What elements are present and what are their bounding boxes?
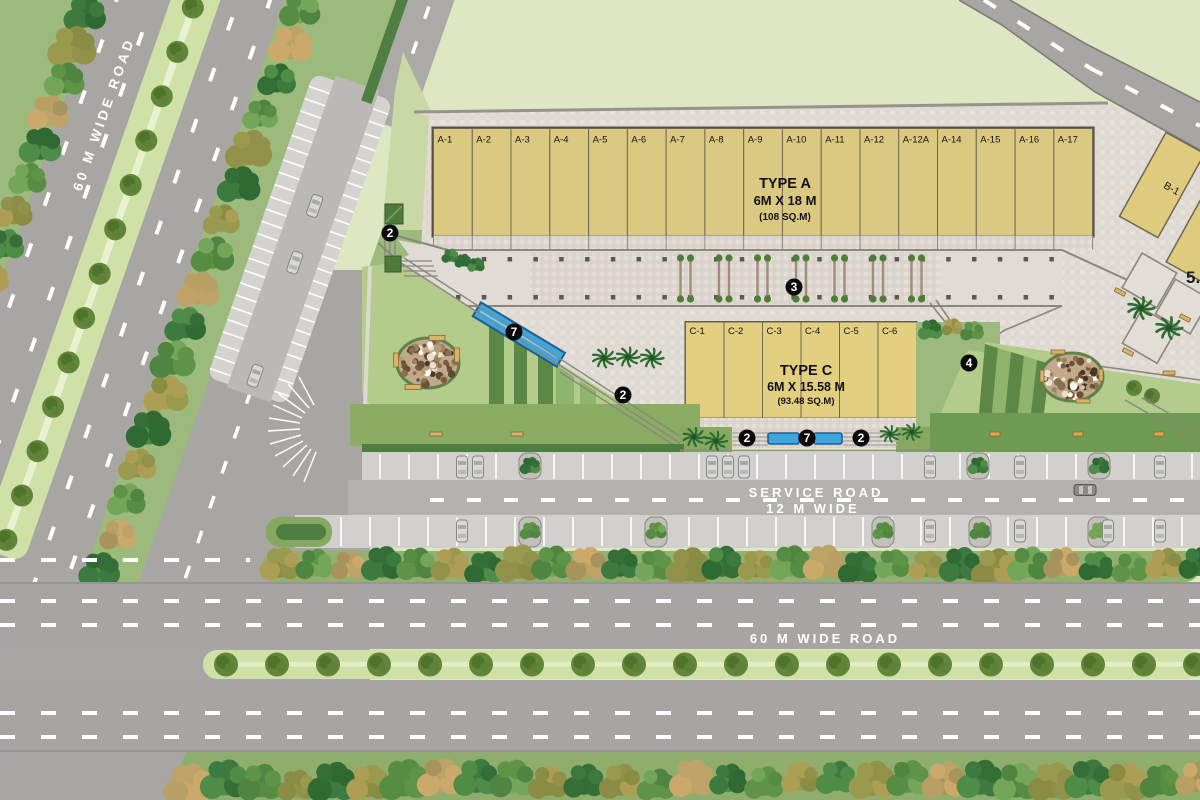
svg-text:A-12A: A-12A	[903, 135, 930, 146]
svg-text:(93.48 SQ.M): (93.48 SQ.M)	[777, 396, 834, 407]
svg-text:A-17: A-17	[1058, 135, 1078, 146]
svg-text:6M X 15.58 M: 6M X 15.58 M	[767, 380, 845, 394]
svg-text:(108 SQ.M): (108 SQ.M)	[759, 212, 811, 223]
svg-text:3: 3	[791, 280, 798, 294]
svg-text:C-4: C-4	[805, 326, 820, 337]
svg-text:A-16: A-16	[1019, 135, 1039, 146]
svg-text:2: 2	[744, 431, 751, 445]
svg-text:A-2: A-2	[476, 135, 491, 146]
svg-text:2: 2	[387, 226, 394, 240]
svg-text:C-5: C-5	[844, 326, 859, 337]
svg-text:12 M WIDE: 12 M WIDE	[766, 501, 859, 516]
svg-text:2: 2	[620, 388, 627, 402]
svg-text:7: 7	[511, 325, 518, 339]
svg-text:C-6: C-6	[882, 326, 897, 337]
svg-text:A-6: A-6	[631, 135, 646, 146]
svg-text:A-1: A-1	[438, 135, 453, 146]
svg-text:A-10: A-10	[786, 135, 806, 146]
svg-text:6M X 18 M: 6M X 18 M	[754, 193, 817, 208]
svg-text:A-14: A-14	[942, 135, 962, 146]
svg-text:TYPE A: TYPE A	[759, 176, 811, 192]
svg-text:A-3: A-3	[515, 135, 530, 146]
svg-text:5.: 5.	[1186, 268, 1200, 287]
svg-text:TYPE C: TYPE C	[780, 363, 833, 379]
svg-text:C-2: C-2	[728, 326, 743, 337]
svg-text:A-9: A-9	[748, 135, 763, 146]
svg-text:A-11: A-11	[825, 135, 844, 146]
svg-text:A-8: A-8	[709, 135, 724, 146]
svg-text:C-1: C-1	[690, 326, 705, 337]
svg-text:A-12: A-12	[864, 135, 884, 146]
svg-text:A-7: A-7	[670, 135, 685, 146]
svg-text:7: 7	[804, 431, 811, 445]
svg-text:A-4: A-4	[554, 135, 569, 146]
svg-text:2: 2	[858, 431, 865, 445]
svg-text:4: 4	[966, 356, 973, 370]
svg-text:A-15: A-15	[980, 135, 1000, 146]
svg-text:60 M WIDE ROAD: 60 M WIDE ROAD	[750, 631, 900, 646]
svg-text:SERVICE ROAD: SERVICE ROAD	[749, 485, 884, 500]
svg-text:A-5: A-5	[593, 135, 608, 146]
svg-text:C-3: C-3	[767, 326, 782, 337]
